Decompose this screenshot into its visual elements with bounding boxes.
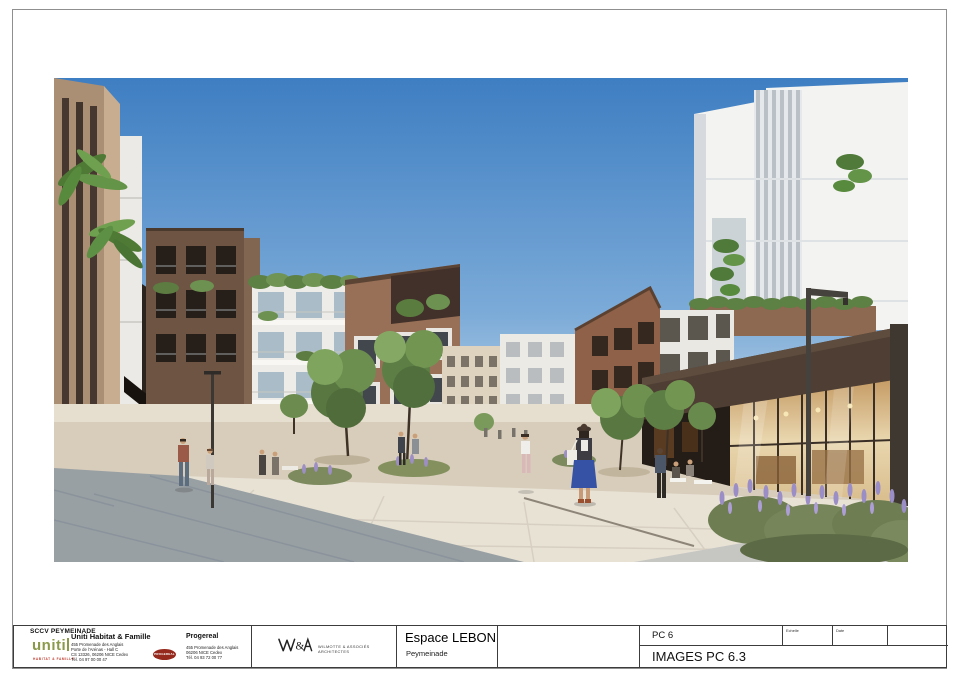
drawing-sheet: SCCV PEYMEINADE uniti HABITAT & FAMILLE …: [0, 0, 960, 679]
title-block-reference-cell: PC 6 Echelle Date IMAGES PC 6.3: [639, 626, 947, 667]
progereal-logo: PROGEREAL: [153, 649, 176, 660]
progereal-address: 455 Promenade des Anglais 06206 NICE Ced…: [186, 645, 238, 660]
uniti-logo: uniti: [32, 638, 69, 653]
date-cell: Date: [832, 626, 887, 646]
sheet-title: IMAGES PC 6.3: [652, 649, 746, 664]
scale-cell: Echelle: [782, 626, 832, 646]
uniti-logo-bar: [67, 638, 69, 651]
sheet-code-cell: PC 6: [640, 626, 782, 646]
date-label: Date: [836, 628, 844, 633]
title-block-empty-cell: [497, 626, 639, 667]
title-block-architect-cell: & WILMOTTE & ASSOCIÉS ARCHITECTES: [251, 626, 396, 667]
uniti-name: Uniti Habitat & Famille: [71, 632, 151, 641]
title-block: SCCV PEYMEINADE uniti HABITAT & FAMILLE …: [13, 625, 947, 668]
sheet-code: PC 6: [652, 630, 673, 641]
title-block-project-cell: Espace LEBON Peymeinade: [396, 626, 497, 667]
scale-label: Echelle: [786, 628, 799, 633]
architect-name: WILMOTTE & ASSOCIÉS ARCHITECTES: [318, 644, 396, 654]
wa-architects-logo: &: [278, 635, 314, 655]
blank-cell: [887, 626, 948, 646]
svg-text:&: &: [296, 641, 305, 653]
uniti-logo-tagline: HABITAT & FAMILLE: [33, 657, 74, 661]
right-white-building: [689, 82, 908, 336]
project-name: Espace LEBON: [405, 630, 496, 645]
project-location: Peymeinade: [406, 649, 448, 658]
sheet-title-cell: IMAGES PC 6.3: [640, 646, 948, 668]
architectural-rendering: [54, 78, 908, 562]
title-block-client-cell: SCCV PEYMEINADE uniti HABITAT & FAMILLE …: [14, 626, 251, 667]
progereal-name: Progereal: [186, 633, 218, 640]
uniti-address: 455 Promenade des Anglais Porte de l'Aré…: [71, 642, 128, 662]
